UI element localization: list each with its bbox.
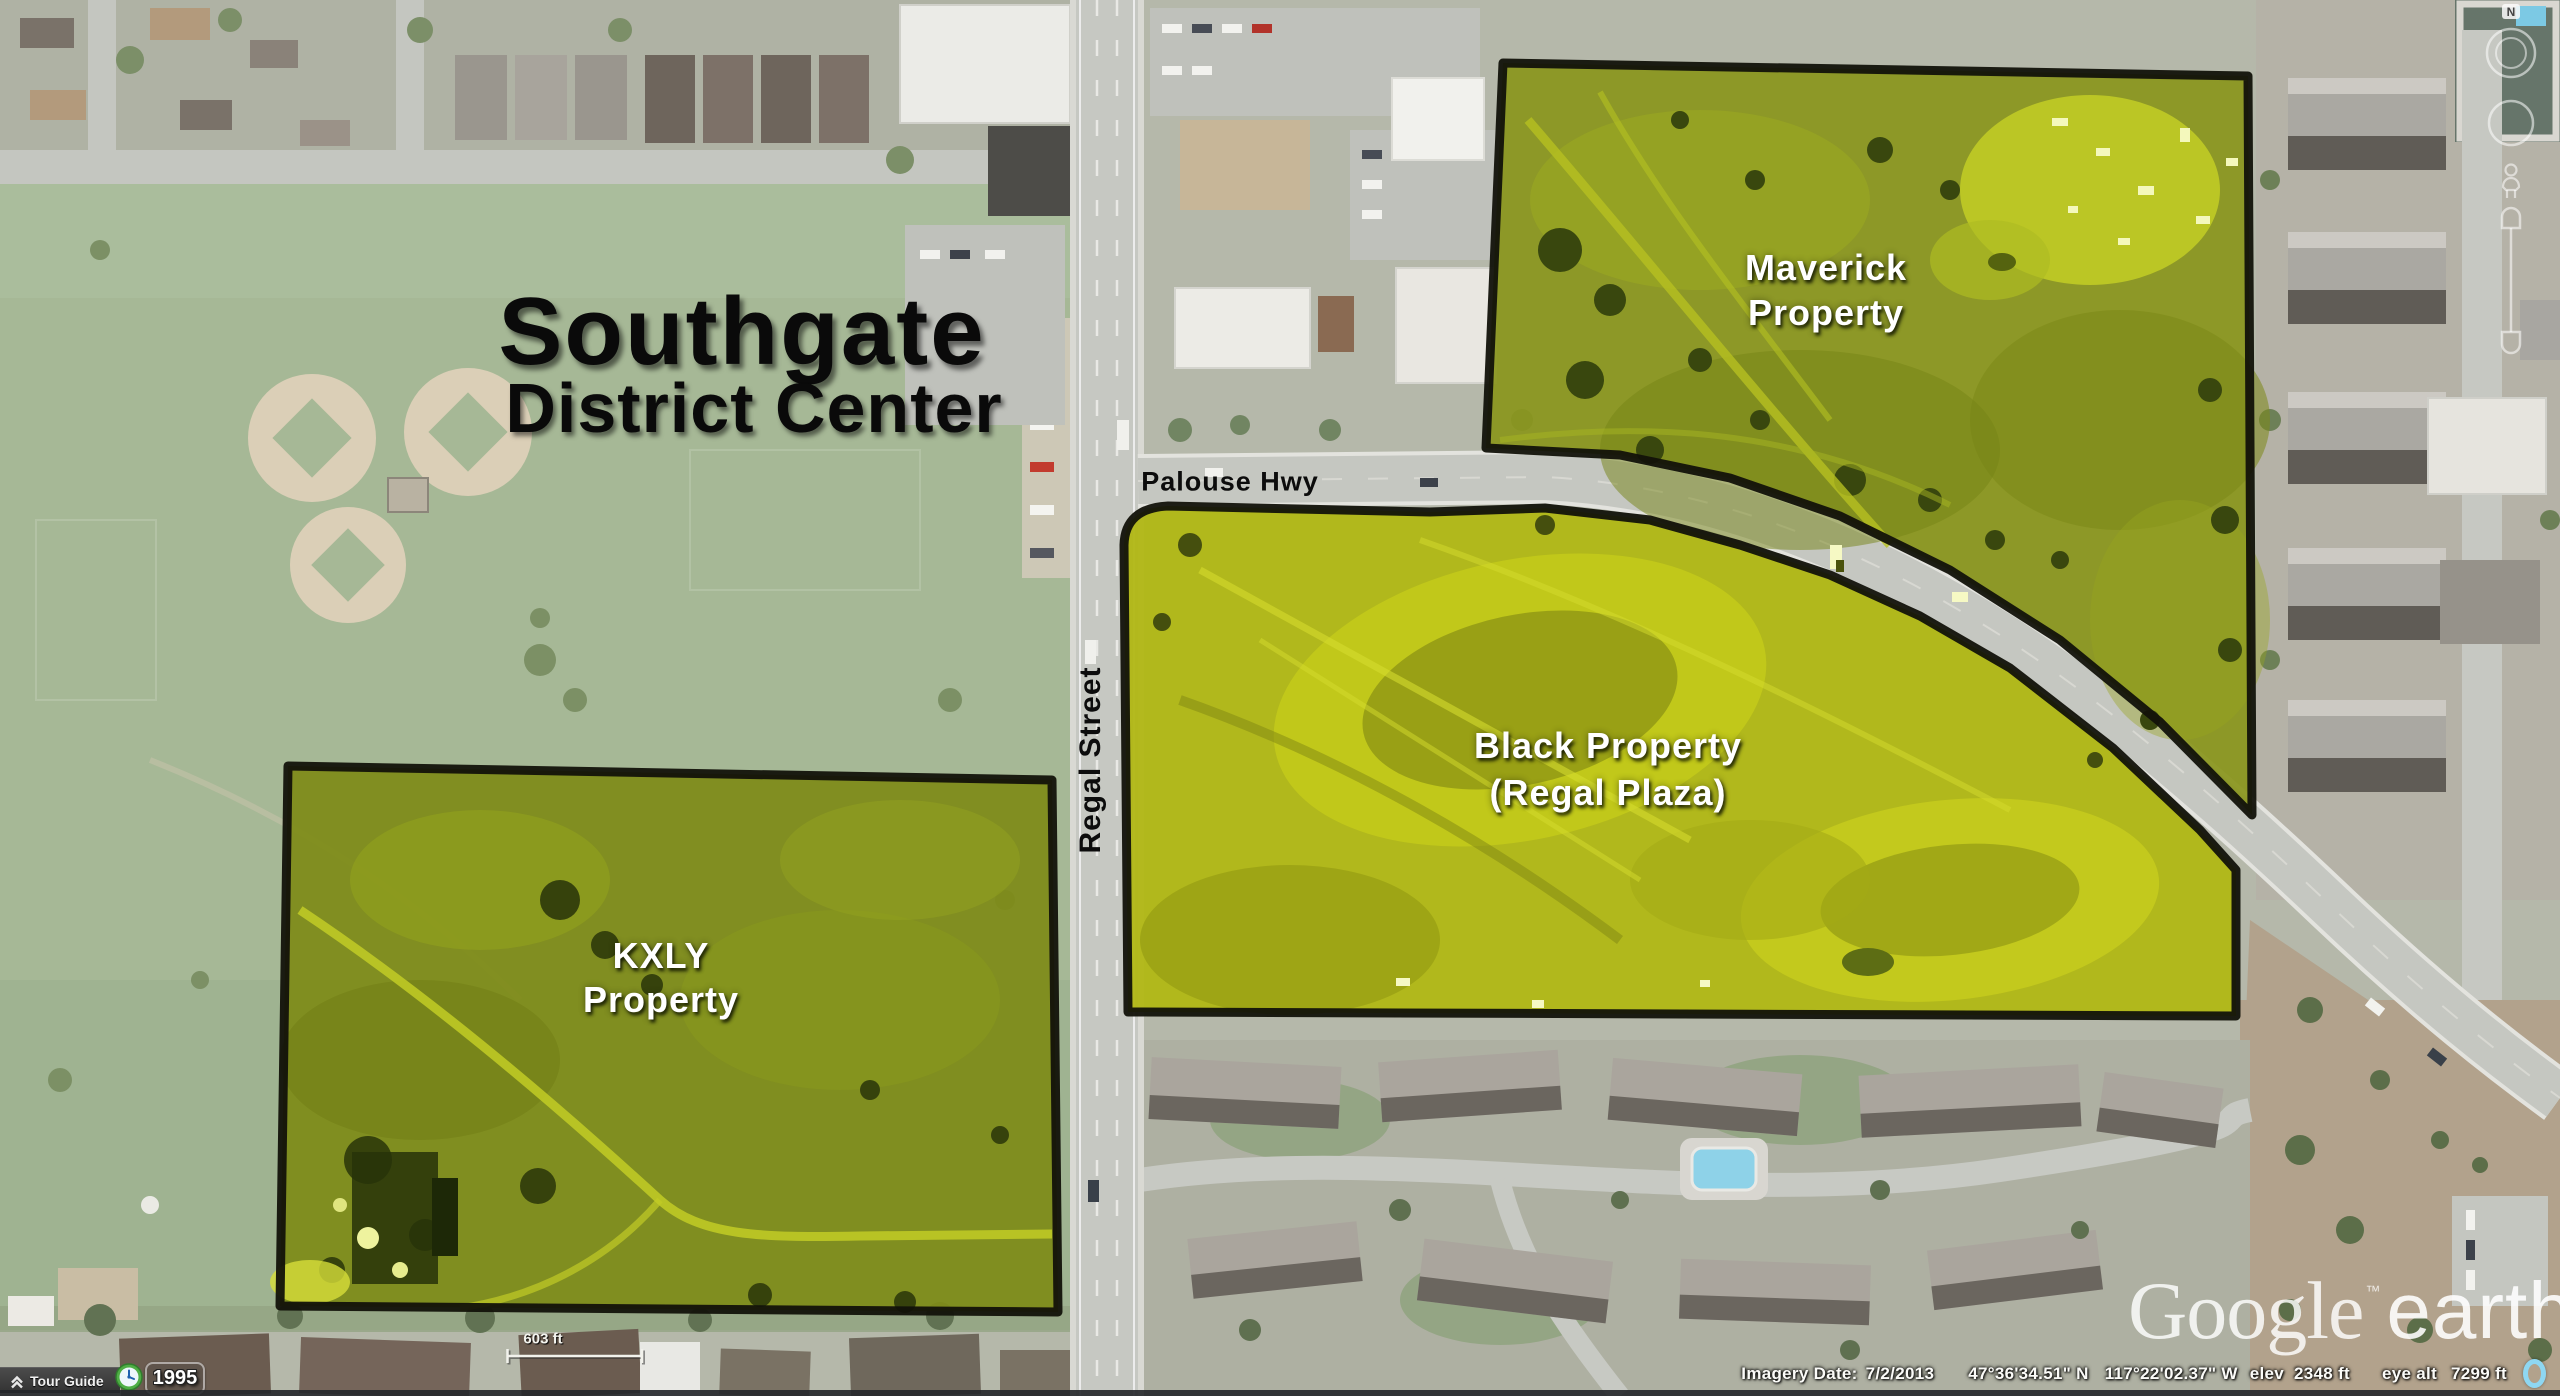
watermark-google-text: Google xyxy=(2128,1264,2363,1358)
status-bar: Imagery Date: 7/2/2013 47°36'34.51" N 11… xyxy=(1741,1359,2546,1388)
scale-bar-label: 603 ft xyxy=(523,1331,562,1348)
black-label-line2: (Regal Plaza) xyxy=(1474,769,1742,816)
south-apartment-complex xyxy=(1140,1040,2250,1396)
pan-control[interactable] xyxy=(2489,101,2533,145)
kxly-property-label: KXLY Property xyxy=(583,934,739,1022)
tour-guide-label: Tour Guide xyxy=(30,1373,104,1389)
eye-altitude-value: 7299 ft xyxy=(2451,1364,2507,1384)
historical-imagery-clock-icon[interactable] xyxy=(114,1362,144,1392)
navigation-controls: N xyxy=(2478,2,2548,368)
zoom-in-button[interactable] xyxy=(2502,208,2520,228)
chevron-double-up-icon xyxy=(8,1372,26,1390)
zoom-slider[interactable] xyxy=(2502,208,2520,353)
maverick-label-line1: Maverick xyxy=(1745,245,1907,290)
longitude-value: 117°22'02.37" W xyxy=(2105,1364,2238,1384)
eye-alt-label: eye alt xyxy=(2382,1364,2437,1384)
google-earth-viewport: Southgate District Center Maverick Prope… xyxy=(0,0,2560,1396)
palouse-hwy-label: Palouse Hwy xyxy=(1141,467,1319,498)
regal-street-label: Regal Street xyxy=(1074,666,1108,853)
zoom-out-button[interactable] xyxy=(2502,332,2520,353)
elevation-value: 2348 ft xyxy=(2294,1364,2350,1384)
compass-control[interactable]: N xyxy=(2487,4,2535,77)
maverick-property-label: Maverick Property xyxy=(1745,245,1907,335)
imagery-date-label: Imagery Date: xyxy=(1741,1364,1857,1384)
black-property-label: Black Property (Regal Plaza) xyxy=(1474,722,1742,816)
latitude-value: 47°36'34.51" N xyxy=(1968,1364,2088,1384)
kxly-property-overlay[interactable] xyxy=(270,766,1058,1313)
imagery-date-value: 7/2/2013 xyxy=(1866,1364,1935,1384)
maverick-label-line2: Property xyxy=(1745,290,1907,335)
watermark-earth-text: earth xyxy=(2386,1265,2560,1357)
compass-north-label: N xyxy=(2507,5,2516,19)
black-label-line1: Black Property xyxy=(1474,722,1742,769)
bottom-edge-strip xyxy=(0,1390,2560,1396)
google-earth-watermark: Google ™ earth xyxy=(2128,1264,2560,1358)
kxly-label-line2: Property xyxy=(583,978,739,1022)
kxly-label-line1: KXLY xyxy=(583,934,739,978)
map-title-line2: District Center xyxy=(505,368,1002,448)
elev-label: elev xyxy=(2250,1364,2284,1384)
watermark-tm: ™ xyxy=(2365,1283,2380,1300)
pegman-control[interactable] xyxy=(2503,165,2519,199)
satellite-map[interactable] xyxy=(0,0,2560,1396)
time-slider-year: 1995 xyxy=(153,1367,198,1390)
streaming-indicator-icon xyxy=(2523,1359,2546,1388)
